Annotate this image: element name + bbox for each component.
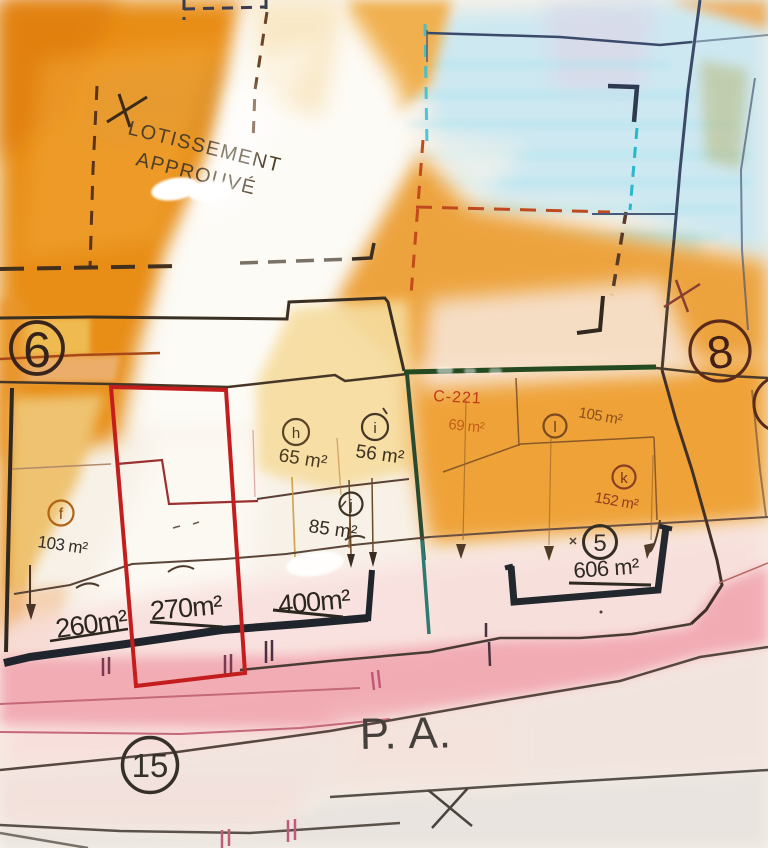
svg-text:C-221: C-221: [433, 388, 482, 408]
svg-text:f: f: [59, 506, 64, 523]
svg-text:270m²: 270m²: [149, 590, 224, 626]
svg-text:15: 15: [132, 747, 169, 784]
svg-text:h: h: [292, 425, 300, 442]
svg-text:6: 6: [23, 322, 51, 378]
svg-text:l: l: [553, 419, 556, 436]
svg-text:k: k: [620, 470, 628, 487]
svg-text:P. A.: P. A.: [359, 708, 452, 759]
svg-text:j: j: [348, 497, 352, 514]
svg-text:5: 5: [593, 530, 606, 557]
svg-text:i: i: [373, 420, 376, 437]
svg-text:606 m²: 606 m²: [573, 553, 640, 583]
